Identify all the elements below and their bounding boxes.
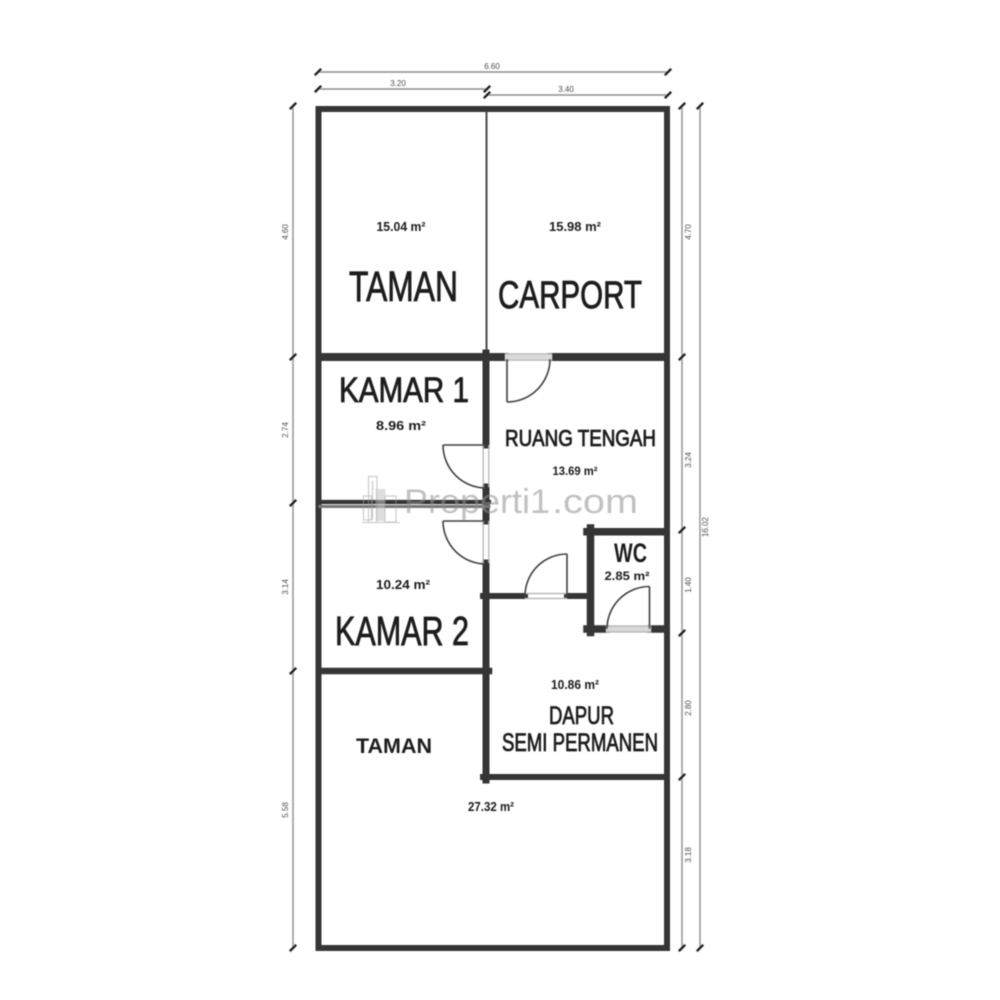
svg-text:2.80: 2.80 <box>684 700 693 716</box>
svg-text:TAMAN: TAMAN <box>356 735 432 758</box>
svg-text:3.20: 3.20 <box>390 79 406 88</box>
svg-text:3.40: 3.40 <box>558 85 574 94</box>
svg-text:10.86 m²: 10.86 m² <box>551 677 600 692</box>
svg-text:KAMAR 2: KAMAR 2 <box>335 608 469 654</box>
svg-text:16.02: 16.02 <box>701 516 710 537</box>
svg-text:4.70: 4.70 <box>684 224 693 240</box>
svg-text:2.74: 2.74 <box>281 422 290 438</box>
svg-text:3.18: 3.18 <box>684 847 693 863</box>
svg-text:15.04 m²: 15.04 m² <box>377 219 427 234</box>
svg-text:13.69 m²: 13.69 m² <box>553 464 598 478</box>
svg-text:3.14: 3.14 <box>281 579 290 595</box>
svg-text:2.85 m²: 2.85 m² <box>605 569 650 583</box>
svg-text:TAMAN: TAMAN <box>349 263 458 311</box>
svg-text:15.98 m²: 15.98 m² <box>549 219 602 234</box>
svg-text:5.58: 5.58 <box>281 802 290 818</box>
svg-text:RUANG TENGAH: RUANG TENGAH <box>505 425 656 451</box>
svg-text:Properti1: Properti1 <box>404 483 550 521</box>
svg-text:10.24 m²: 10.24 m² <box>376 577 431 592</box>
svg-text:8.96 m²: 8.96 m² <box>376 418 427 433</box>
svg-text:4.60: 4.60 <box>281 224 290 240</box>
svg-text:DAPUR: DAPUR <box>549 702 614 730</box>
svg-text:1.40: 1.40 <box>684 577 693 593</box>
svg-text:SEMI PERMANEN: SEMI PERMANEN <box>502 729 658 757</box>
svg-text:WC: WC <box>614 538 647 568</box>
svg-text:CARPORT: CARPORT <box>498 274 642 317</box>
svg-text:3.24: 3.24 <box>684 452 693 468</box>
svg-text:.com: .com <box>552 483 638 521</box>
svg-text:27.32 m²: 27.32 m² <box>468 799 515 814</box>
svg-text:6.60: 6.60 <box>484 62 500 71</box>
svg-text:KAMAR 1: KAMAR 1 <box>339 371 469 410</box>
